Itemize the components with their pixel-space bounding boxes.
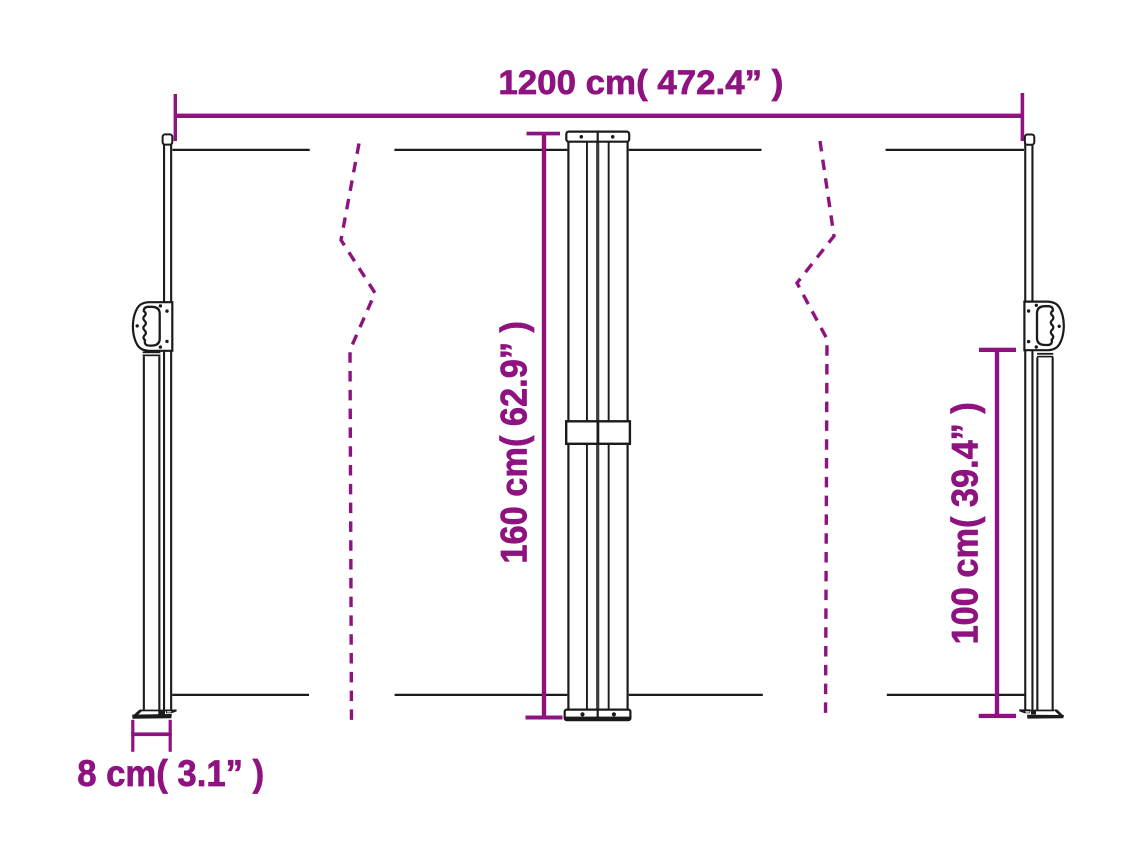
svg-text:160 cm( 62.9” ): 160 cm( 62.9” ) (493, 321, 534, 564)
svg-text:100 cm( 39.4” ): 100 cm( 39.4” ) (945, 402, 986, 644)
svg-text:1200 cm( 472.4” ): 1200 cm( 472.4” ) (498, 64, 783, 102)
svg-text:8 cm( 3.1” ): 8 cm( 3.1” ) (77, 753, 264, 794)
